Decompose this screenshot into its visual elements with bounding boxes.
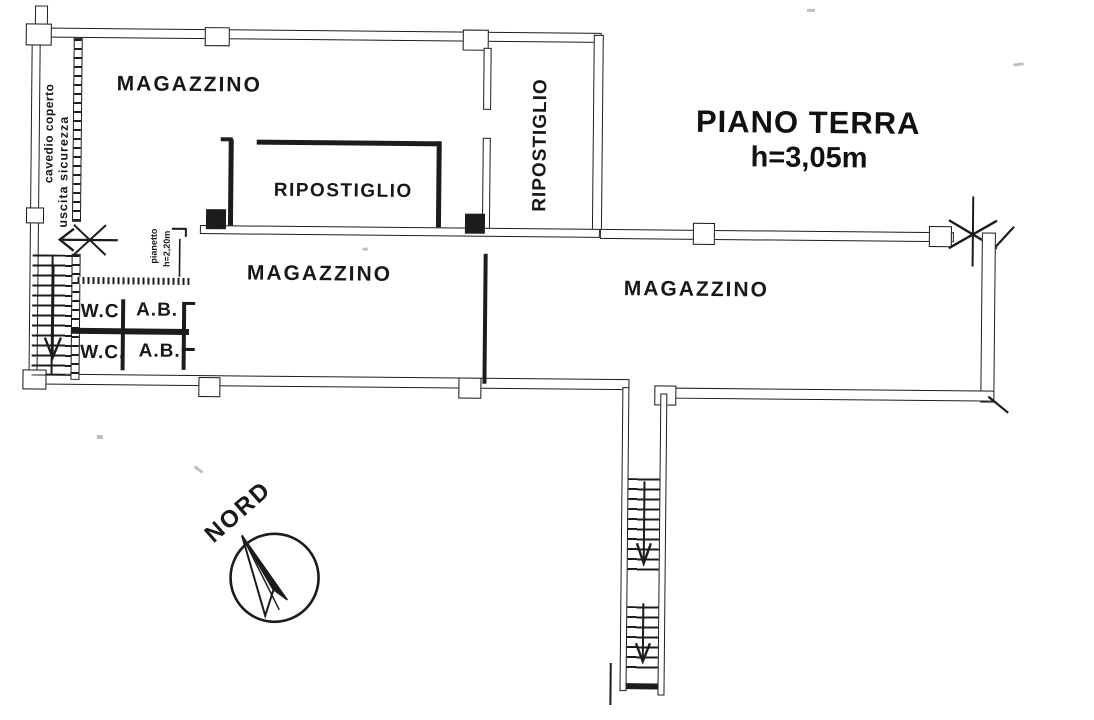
pillar-right-top <box>693 223 715 245</box>
wall-wc-stub <box>182 304 187 370</box>
label-magazzino-center: MAGAZZINO <box>247 261 392 286</box>
scan-speck <box>194 465 204 473</box>
label-magazzino-upper: MAGAZZINO <box>117 72 262 97</box>
scanned-floor-plan-page: cavedio coperto uscita sicurezza MAGAZZI… <box>0 0 1094 720</box>
wall-corridor-left-upper <box>483 48 492 110</box>
label-uscita-sicurezza: uscita sicurezza <box>56 116 71 228</box>
pillar-top-1 <box>205 27 230 46</box>
wall-top <box>32 27 602 42</box>
pillar-bottom-1 <box>198 377 220 397</box>
stairs-bottom-arrow2 <box>634 603 653 669</box>
wall-right-top <box>600 229 954 242</box>
label-wc-lower: W.C. <box>80 342 125 364</box>
partition-center-right <box>482 254 487 384</box>
wall-inner-left-upper <box>72 38 83 222</box>
label-magazzino-right: MAGAZZINO <box>624 277 769 302</box>
label-ripostiglio-inner: RIPOSTIGLIO <box>274 180 413 203</box>
stair-corridor-wall-right <box>657 393 667 695</box>
ripostiglio-box-left <box>228 139 234 227</box>
stairs-bottom-arrow1 <box>635 481 654 573</box>
pillar-mid-right <box>465 214 485 234</box>
pillar-left-mid <box>26 207 44 223</box>
wall-bottom-right <box>656 387 994 401</box>
scan-speck <box>807 9 815 12</box>
label-ripostiglio-vertical: RIPOSTIGLIO <box>529 78 552 212</box>
wall-corridor-right-edge <box>592 35 604 237</box>
exit-arrow <box>56 220 122 261</box>
wall-break-tick-top <box>994 223 1016 251</box>
pillar-mid-left <box>206 209 226 229</box>
scan-speck <box>363 248 368 251</box>
ripostiglio-box-right <box>436 141 442 231</box>
label-nord: NORD <box>200 476 277 548</box>
wall-wc-stub-hook-bottom <box>182 348 195 351</box>
label-ab-upper: A.B. <box>136 299 178 321</box>
label-wc-upper: W.C <box>81 301 120 323</box>
pillar-top-left <box>26 23 52 45</box>
scan-speck <box>1013 62 1023 66</box>
wall-mid-horizontal <box>200 225 600 238</box>
pianetto-bracket <box>167 221 194 283</box>
wall-wc-stub-hook-top <box>182 302 195 305</box>
ripostiglio-box-left-hook <box>221 137 233 141</box>
plan-height: h=3,05m <box>750 141 867 175</box>
scan-speck <box>97 435 103 439</box>
compass: NORD <box>201 477 337 642</box>
pillar-bottom-2 <box>458 378 481 399</box>
stairs-left-arrow <box>43 266 64 372</box>
label-cavedio-coperto: cavedio coperto <box>41 84 56 184</box>
stairs-bottom-sideline <box>609 663 611 705</box>
wall-right-outer <box>980 233 996 403</box>
plan-title: PIANO TERRA <box>696 104 921 142</box>
ripostiglio-box-top <box>257 140 441 147</box>
label-ab-lower: A.B. <box>139 340 181 362</box>
stairs-bottom-endbar <box>627 683 658 689</box>
wall-bottom-left <box>28 373 629 390</box>
wall-wc-mid <box>71 328 189 335</box>
floor-plan: cavedio coperto uscita sicurezza MAGAZZI… <box>0 0 1094 720</box>
label-pianetto: pianetto <box>149 229 159 264</box>
wall-break-tick-corner <box>986 393 1010 417</box>
